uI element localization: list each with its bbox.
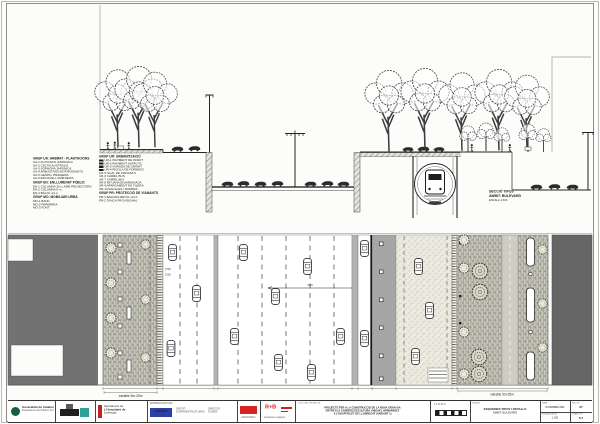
- bench-icon: [118, 146, 124, 149]
- plan-name-line2: ÀMBIT: BULEVARD: [470, 411, 540, 414]
- crosswalk: [428, 368, 448, 382]
- project-title-header: TÍTOL DEL PROJECTE: [298, 402, 320, 404]
- roadway-main: [218, 235, 370, 385]
- legend-item: MO-3 FONT: [33, 207, 168, 210]
- divider-strip: [352, 235, 358, 385]
- barrier-line: [371, 235, 373, 385]
- building-block-right: [552, 235, 592, 385]
- project-title: PROJECTE PER A LA CONSTRUCCIÓ DE LA NOVA…: [295, 407, 430, 416]
- variable-dim-right: variable 5m-25m: [458, 390, 547, 397]
- gestor-header: EMPRESA GESTORA: [150, 402, 172, 405]
- car-icon: [304, 259, 312, 275]
- bench-icon: [525, 147, 531, 150]
- lane-dim-label: 3.50: [165, 267, 171, 271]
- generalitat-dept: Departament de Política Territorial: [22, 409, 54, 412]
- divider-strip: [214, 235, 218, 385]
- car-icon: [275, 355, 283, 371]
- lane-dim-label: 3.50: [165, 273, 171, 277]
- hedge-strip: [157, 235, 163, 385]
- gestor-logo-text: EGECSA: [150, 410, 172, 413]
- car-icon: [231, 329, 239, 345]
- legend-list-pr: PR-1 BARANA METÀL·LICAPR-2 TANCA PROVISI…: [99, 196, 234, 202]
- person-icon: [127, 142, 130, 150]
- streetlight-icon: [206, 95, 214, 153]
- builder-logo-icon: [60, 409, 79, 416]
- dim-label-left: variable 5m-25m: [119, 394, 143, 398]
- car-icon: [337, 329, 345, 345]
- median-strip: [372, 235, 396, 385]
- dimension-row: [103, 387, 548, 390]
- ajuntament-line: Llobregat: [104, 412, 125, 415]
- variable-dim-left: variable 5m-25m: [104, 391, 157, 398]
- technical-drawing: 3.50 3.50 3.50 variable 5m-25m: [0, 0, 600, 424]
- gestor-logo: EGECSA: [150, 408, 172, 417]
- legend-item: PR-2 TANCA PROVISIONAL: [99, 199, 234, 202]
- date-value: NOVEMBRE 2002: [540, 406, 570, 409]
- gestor-b2: D'OBRA: [208, 411, 220, 414]
- rb-logo-bar: [281, 411, 288, 413]
- platform-cars: [403, 147, 445, 152]
- rb-logo-text: R+B: [265, 404, 276, 410]
- scalebar-ticks: 0 5 10 25 m: [434, 403, 446, 406]
- right-trees: [365, 68, 551, 152]
- plan-name-line1: ESQUEMES TIPUS I DETALLS: [470, 408, 540, 411]
- car-icon: [272, 289, 280, 305]
- side-lane: [358, 235, 371, 385]
- consultant-text: ENGINYERIA: [237, 416, 260, 419]
- metro-tunnel: [413, 156, 457, 218]
- service-lane: [396, 235, 452, 385]
- gestor-text-b: DIRECCIÓ D'OBRA: [208, 408, 220, 414]
- ajuntament-logo-icon: [98, 405, 102, 418]
- hedge-strip: [452, 235, 457, 385]
- sidewalk-slab: [100, 150, 163, 153]
- drawing-sheet: 3.50 3.50 3.50 variable 5m-25m: [0, 0, 600, 424]
- gestor-text-a: GESTIÓ D'INFRAESTRUCTURES: [176, 408, 205, 414]
- legend-item: UR-10 ESCALES I RAMPES: [99, 188, 234, 191]
- car-icon: [172, 147, 183, 152]
- legend-list-ur: UR-1 PAVIMENT DE PANOTUR-2 PAVIMENT ASFÀ…: [99, 159, 234, 191]
- plan-number-label: PLÀNOL Nº: [572, 413, 583, 415]
- scale-label: ESCALA DIN-A1: [542, 413, 557, 415]
- rb-logo-bar: [281, 407, 292, 409]
- lane-dim-label: 3.50: [307, 283, 313, 287]
- sheet-number-label: FULL Nº: [572, 402, 580, 404]
- generalitat-logo-icon: [11, 407, 20, 416]
- legend-group-title: GRUP UR: URBANITZACIÓ: [99, 155, 234, 158]
- car-icon: [412, 349, 420, 365]
- planted-strip-right: [457, 235, 548, 385]
- scale-value: 1:300: [540, 417, 570, 420]
- title-block: Generalitat de Catalunya Departament de …: [8, 400, 592, 423]
- person-icon: [113, 142, 116, 150]
- car-icon: [361, 331, 369, 347]
- car-icon: [169, 245, 177, 261]
- dim-label-right: variable 5m-25m: [490, 393, 514, 397]
- plan-number-value: 6.7: [570, 417, 592, 420]
- section-caption: SECCIÓ TIPUS ÀMBIT: BULEVARD ESCALA 1:30…: [489, 190, 521, 202]
- car-icon: [308, 365, 316, 381]
- rb-subtext: arquitectes enginyers: [264, 416, 285, 419]
- car-icon: [189, 146, 200, 151]
- building-block-left: [8, 235, 98, 385]
- bus-lane: [502, 235, 518, 385]
- legend-column-2: GRUP UR: URBANITZACIÓ UR-1 PAVIMENT DE P…: [99, 154, 234, 203]
- trench-cars: [222, 181, 349, 187]
- car-icon: [240, 245, 248, 261]
- planted-strip-left: [103, 235, 157, 385]
- plan-name-header: PLÀNOL: [472, 402, 480, 404]
- roadway-local: [163, 235, 214, 385]
- retaining-wall: [354, 153, 360, 213]
- project-title-line: A L'HOSPITALET DE LLOBREGAT (VARIANT 1): [295, 413, 430, 416]
- consultant-logo-icon: [240, 406, 257, 414]
- person-icon: [106, 142, 109, 150]
- plan-name: ESQUEMES TIPUS I DETALLS ÀMBIT: BULEVARD: [470, 408, 540, 414]
- deck-slab: [360, 153, 460, 157]
- generalitat-text: Generalitat de Catalunya Departament de …: [22, 406, 54, 412]
- bus-platforms: [527, 238, 535, 380]
- car-icon: [426, 303, 434, 319]
- section-caption-scale: ESCALA 1:300: [489, 199, 521, 202]
- streetlight-icon: [582, 132, 594, 190]
- right-road-cars: [531, 184, 578, 190]
- ajuntament-text: Ajuntament de L'Hospitalet de Llobregat: [104, 405, 125, 415]
- date-label: DATA: [542, 402, 547, 404]
- car-icon: [361, 241, 369, 257]
- car-icon: [415, 259, 423, 275]
- central-mast-icon: [285, 131, 305, 188]
- gestor-a2: D'INFRAESTRUCTURES: [176, 411, 205, 414]
- sheet-number-value: 07: [570, 406, 592, 409]
- metro-train-icon: [424, 170, 446, 204]
- scalebar-icon: [435, 410, 467, 416]
- builder-logo-teal-icon: [80, 408, 89, 417]
- car-icon: [167, 341, 175, 357]
- car-icon: [193, 286, 201, 302]
- plan-view: 3.50 3.50 3.50 variable 5m-25m: [8, 234, 592, 399]
